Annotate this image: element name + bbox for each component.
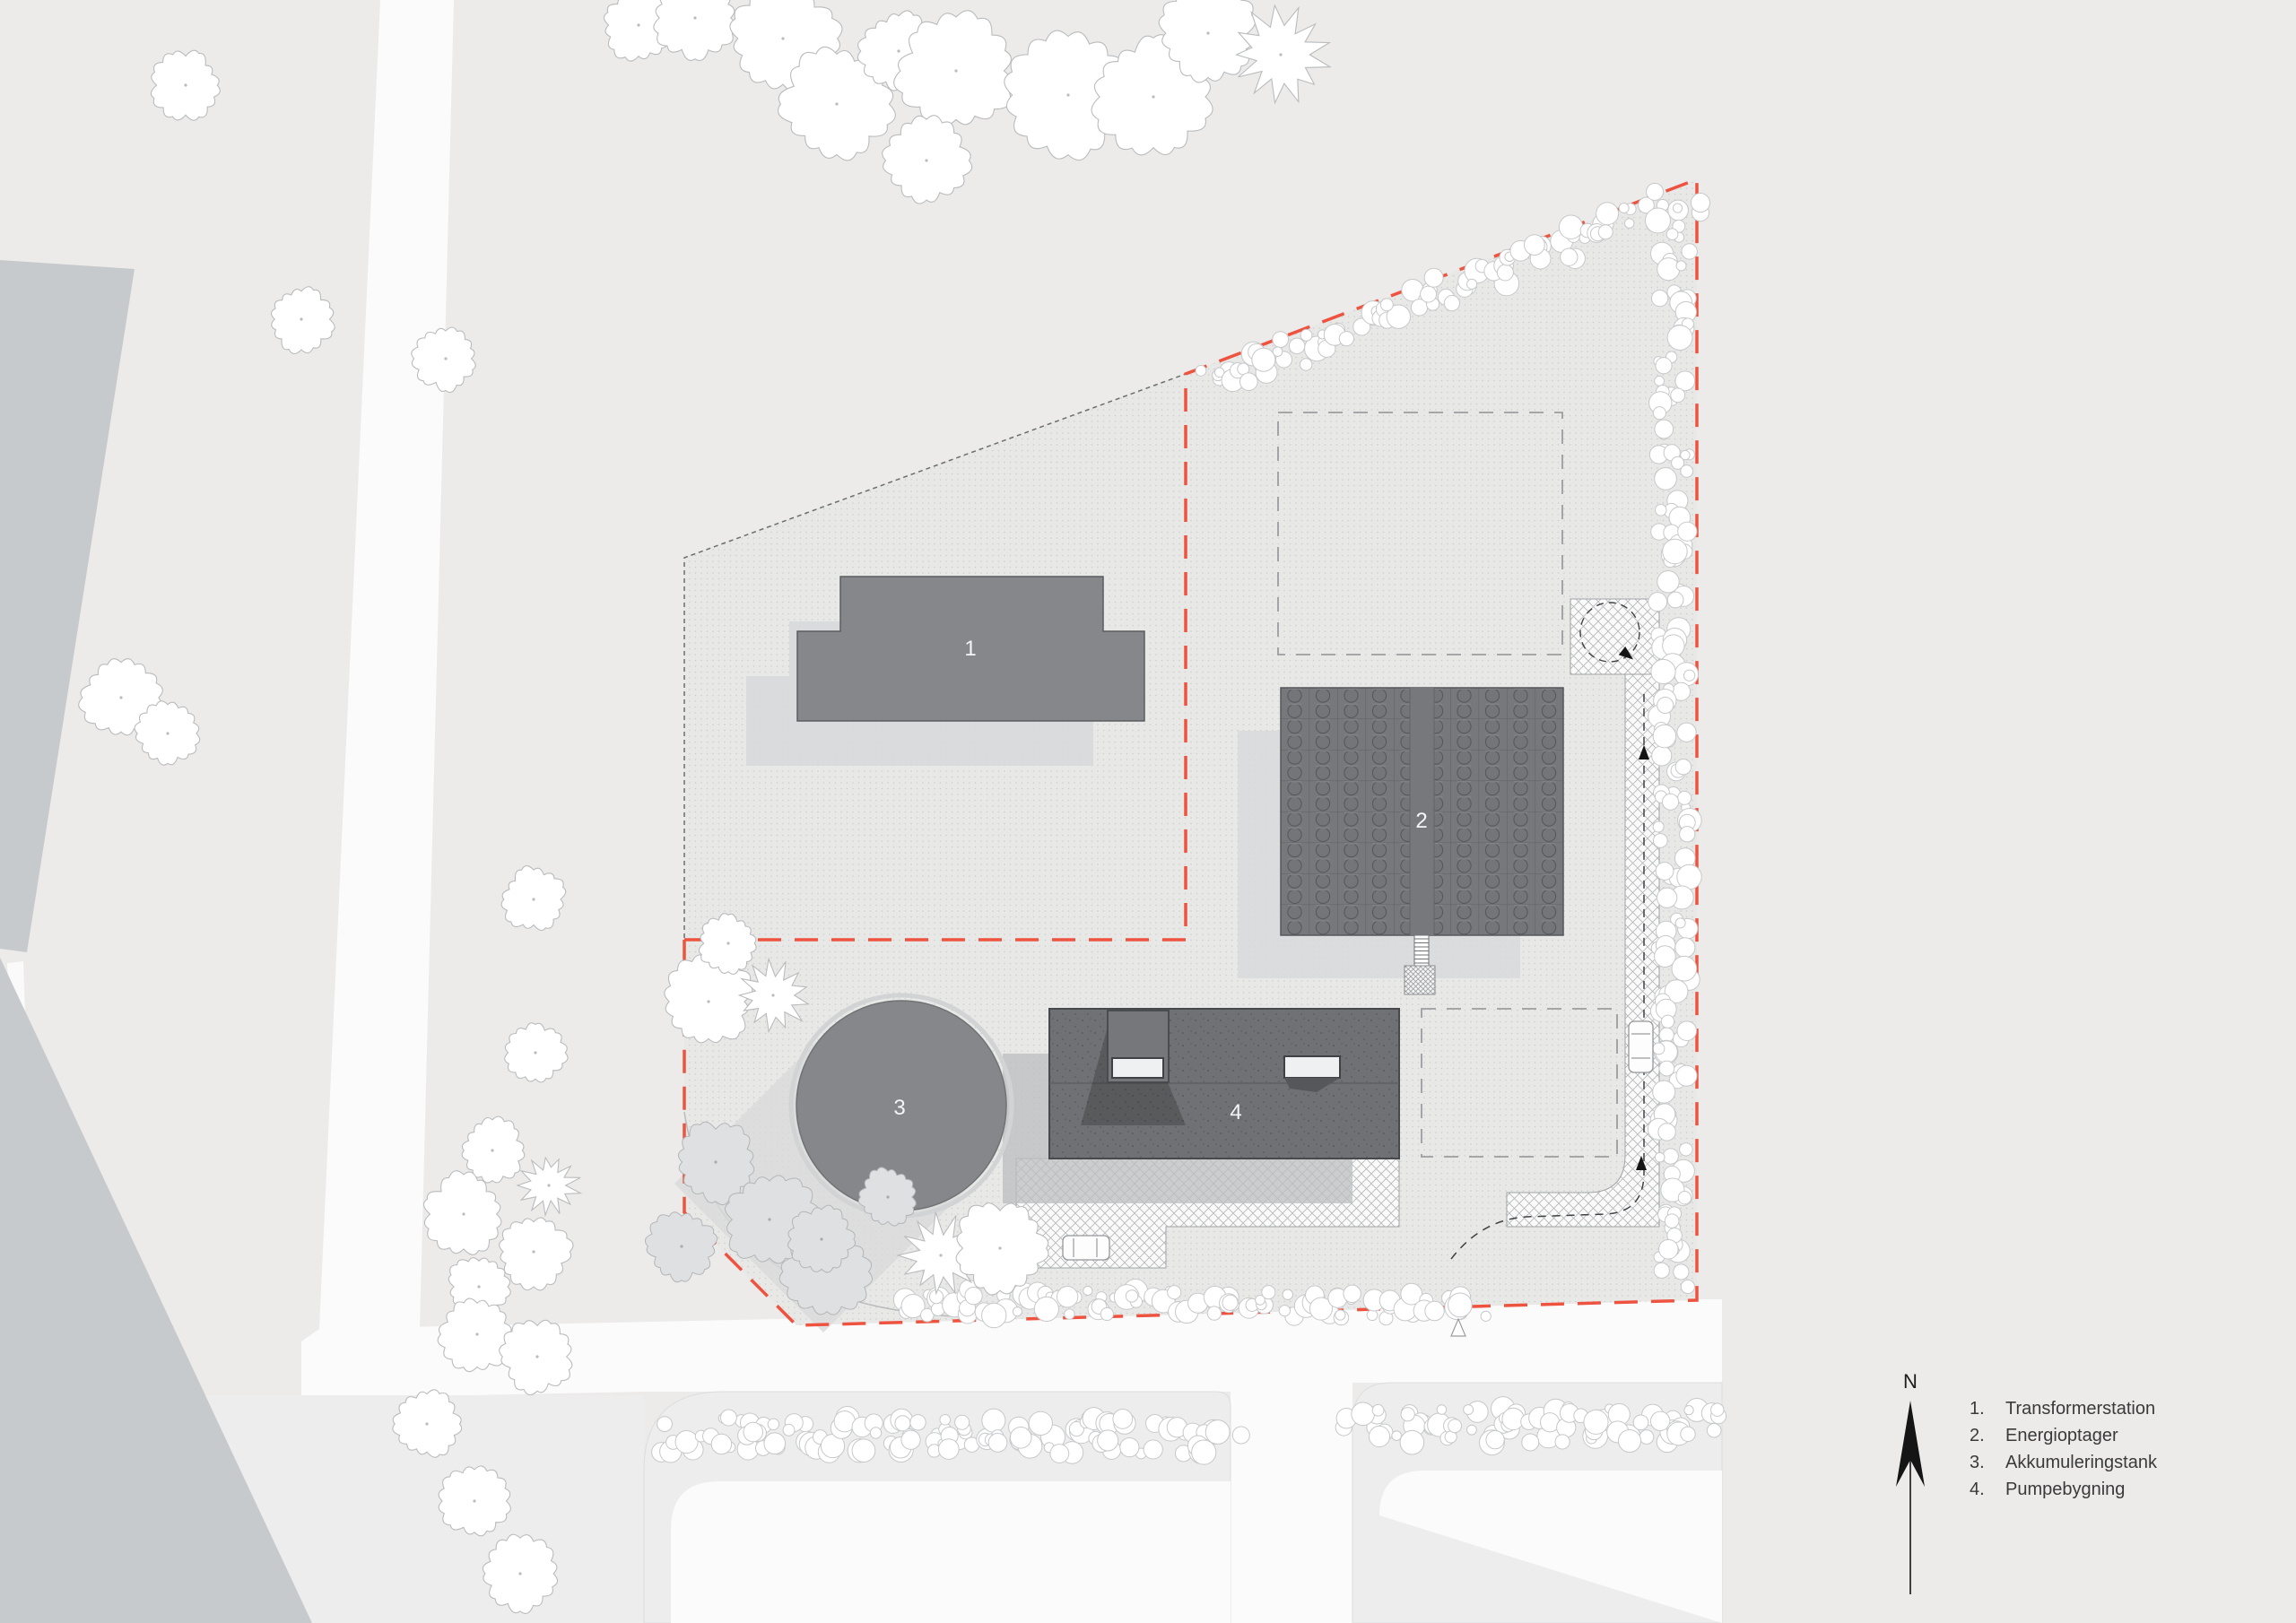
- hedge-shrub: [1652, 746, 1672, 766]
- hedge-shrub: [1467, 1425, 1477, 1435]
- tree-center-dot: [535, 1355, 538, 1358]
- building-4-label: 4: [1230, 1100, 1241, 1124]
- hedge-shrub: [1525, 235, 1545, 256]
- hedge-shrub: [1192, 1440, 1216, 1464]
- hedge-shrub: [1651, 290, 1667, 306]
- tree-center-dot: [680, 1245, 683, 1247]
- hedge-shrub: [1633, 1415, 1648, 1430]
- hedge-shrub: [910, 1415, 926, 1430]
- tree-center-dot: [771, 994, 774, 996]
- legend-label: Pumpebygning: [2005, 1476, 2125, 1503]
- access-ladder-rungs: [1414, 939, 1429, 963]
- hedge-shrub: [1559, 215, 1582, 239]
- hedge-shrub: [1207, 1306, 1221, 1320]
- hedge-shrub: [982, 1303, 1006, 1327]
- hedge-shrub: [1655, 376, 1665, 386]
- hedge-shrub: [1678, 1192, 1691, 1204]
- hedge-shrub: [1645, 208, 1670, 233]
- hedge-shrub: [1656, 358, 1672, 374]
- tree-center-dot: [707, 1000, 709, 1002]
- hedge-shrub: [1372, 1404, 1384, 1416]
- hedge-shrub: [1467, 279, 1477, 289]
- legend-item-pumpebygning: 4. Pumpebygning: [1970, 1476, 2157, 1503]
- hedge-shrub: [988, 1433, 1007, 1452]
- hedge-shrub: [1065, 1309, 1074, 1319]
- hedge-shrub: [1057, 1287, 1077, 1307]
- hedge-shrub: [1497, 265, 1513, 281]
- site-plan-canvas: 1234: [0, 0, 2296, 1623]
- hedge-shrub: [1289, 338, 1304, 353]
- hedge-shrub: [1598, 225, 1613, 239]
- legend-number: 1.: [1970, 1395, 1993, 1422]
- hedge-shrub: [1653, 725, 1676, 748]
- hedge-shrub: [1421, 286, 1437, 302]
- hedge-shrub: [1283, 1289, 1292, 1299]
- hedge-shrub: [1240, 373, 1258, 391]
- hedge-shrub: [1711, 1403, 1724, 1416]
- hedge-shrub: [1098, 1430, 1118, 1451]
- hedge-shrub: [1561, 248, 1578, 265]
- legend-number: 4.: [1970, 1476, 1993, 1503]
- north-arrow-icon: [1882, 1393, 1939, 1600]
- hedge-shrub: [1400, 1430, 1424, 1454]
- hedge-shrub: [1205, 1420, 1230, 1445]
- hedge-shrub: [1653, 821, 1664, 832]
- hedge-shrub: [1667, 592, 1683, 608]
- hedge-shrub: [1273, 347, 1283, 357]
- hedge-shrub: [1481, 1311, 1491, 1321]
- skylight: [1112, 1058, 1163, 1078]
- hedge-shrub: [1100, 1307, 1113, 1320]
- hedge-shrub: [1196, 365, 1206, 376]
- tree-center-dot: [518, 1572, 521, 1575]
- legend-label: Akkumuleringstank: [2005, 1449, 2157, 1476]
- hedge-shrub: [1658, 1124, 1675, 1141]
- hedge-shrub: [1448, 1419, 1462, 1433]
- hedge-shrub: [1126, 1290, 1137, 1302]
- hedge-shrub: [1425, 1301, 1444, 1320]
- tree-center-dot: [693, 16, 696, 19]
- hedge-shrub: [1083, 1286, 1092, 1295]
- hedge-shrub: [1653, 407, 1665, 420]
- hedge-shrub: [1279, 1306, 1290, 1316]
- legend-number: 3.: [1970, 1449, 1993, 1476]
- hedge-shrub: [1010, 1427, 1031, 1448]
- hedge-shrub: [1300, 359, 1311, 370]
- hedge-shrub: [1050, 1445, 1069, 1463]
- north-label: N: [1882, 1370, 1939, 1393]
- hedge-shrub: [1624, 219, 1633, 228]
- hedge-shrub: [1113, 1409, 1133, 1428]
- hedge-shrub: [1675, 918, 1685, 928]
- tree-center-dot: [166, 732, 169, 734]
- hedge-shrub: [1666, 229, 1678, 240]
- hedge-shrub: [1661, 1015, 1674, 1028]
- north-indicator: N: [1882, 1370, 1939, 1604]
- hedge-shrub: [1678, 791, 1692, 804]
- tree-center-dot: [835, 102, 838, 105]
- building-1-label: 1: [964, 637, 976, 661]
- tree-center-dot: [939, 1254, 942, 1256]
- tree-center-dot: [637, 23, 639, 26]
- hedge-shrub: [1655, 1152, 1665, 1162]
- hedge-shrub: [1657, 258, 1680, 281]
- hedge-shrub: [1034, 1297, 1058, 1321]
- tree-center-dot: [184, 83, 187, 86]
- hedge-shrub: [965, 1287, 982, 1304]
- hedge-shrub: [1464, 1405, 1474, 1415]
- car: [1629, 1021, 1653, 1072]
- hedge-shrub: [1486, 1430, 1504, 1448]
- hedge-shrub: [1444, 296, 1459, 311]
- tree-center-dot: [532, 898, 535, 900]
- hedge-shrub: [1677, 1021, 1697, 1041]
- tree-center-dot: [462, 1212, 465, 1215]
- hedge-shrub: [1653, 1043, 1665, 1055]
- hedge-shrub: [1013, 1307, 1022, 1316]
- tree-center-dot: [547, 1184, 550, 1186]
- hedge-shrub: [657, 1417, 673, 1432]
- tree-center-dot: [477, 1285, 480, 1288]
- hedge-shrub: [1691, 193, 1709, 212]
- hedge-shrub: [675, 1430, 698, 1453]
- hedge-shrub: [1401, 1408, 1414, 1421]
- hedge-shrub: [1672, 956, 1697, 981]
- tree-center-dot: [444, 357, 447, 360]
- hedge-shrub: [1584, 1410, 1608, 1434]
- hedge-shrub: [1667, 325, 1692, 351]
- hedge-shrub: [1029, 1411, 1052, 1435]
- hedge-shrub: [1168, 1286, 1181, 1299]
- tree-center-dot: [300, 317, 302, 320]
- hedge-shrub: [1653, 1081, 1675, 1103]
- hedge-shrub: [1663, 794, 1679, 810]
- hedge-shrub: [1437, 1405, 1447, 1415]
- driveway-paving: [1570, 599, 1659, 674]
- hedge-shrub: [1339, 332, 1353, 346]
- hedge-shrub: [1653, 834, 1667, 848]
- hedge-shrub: [1671, 388, 1685, 403]
- tree-center-dot: [726, 942, 729, 944]
- hedge-shrub: [720, 1410, 736, 1426]
- hedge-shrub: [1681, 1280, 1694, 1293]
- hedge-shrub: [1657, 697, 1674, 713]
- hedge-shrub: [1256, 1295, 1265, 1305]
- hedge-shrub: [1596, 203, 1619, 225]
- tree-center-dot: [781, 37, 784, 39]
- site-plan-page: 1234 N 1. Transformerstation 2. Energiop…: [0, 0, 2296, 1623]
- hedge-shrub: [1678, 522, 1697, 541]
- tree-center-dot: [532, 1250, 535, 1253]
- car: [1063, 1236, 1109, 1260]
- tree-center-dot: [925, 159, 927, 161]
- legend-number: 2.: [1970, 1422, 1993, 1449]
- tree-center-dot: [1152, 95, 1154, 98]
- tree-center-dot: [534, 1051, 536, 1054]
- hedge-shrub: [1682, 244, 1697, 259]
- hedge-shrub: [768, 1419, 778, 1429]
- hedge-shrub: [1680, 1143, 1692, 1156]
- hedge-shrub: [870, 1428, 881, 1438]
- tree-center-dot: [425, 1422, 428, 1425]
- hedge-shrub: [1120, 1437, 1139, 1456]
- hedge-shrub: [1273, 332, 1289, 348]
- neighbor-lot: [671, 1481, 1231, 1623]
- hedge-shrub: [982, 1409, 1005, 1432]
- hedge-shrub: [955, 1415, 970, 1429]
- access-pad: [1405, 966, 1435, 994]
- hedge-shrub: [1352, 1402, 1375, 1426]
- hedge-shrub: [1655, 420, 1674, 438]
- tree-center-dot: [1206, 31, 1209, 34]
- hedge-shrub: [1659, 1239, 1679, 1259]
- hedge-shrub: [1684, 1405, 1693, 1414]
- hedge-shrub: [938, 1439, 959, 1460]
- legend-item-akkumuleringstank: 3. Akkumuleringstank: [1970, 1449, 2157, 1476]
- tree-center-dot: [954, 69, 957, 72]
- hedge-shrub: [1651, 659, 1675, 683]
- hedge-shrub: [1232, 1427, 1249, 1444]
- hedge-shrub: [1675, 938, 1695, 958]
- hedge-shrub: [1673, 204, 1682, 213]
- hedge-shrub: [1707, 1423, 1721, 1437]
- hedge-shrub: [1676, 1065, 1697, 1086]
- hedge-shrub: [1681, 1427, 1695, 1441]
- hedge-shrub: [895, 1416, 910, 1431]
- hedge-shrub: [940, 1415, 951, 1426]
- hedge-shrub: [1654, 1263, 1669, 1278]
- tree-center-dot: [473, 1499, 475, 1502]
- hedge-shrub: [1675, 759, 1691, 774]
- hedge-shrub: [744, 1422, 763, 1442]
- hedge-shrub: [1676, 261, 1686, 271]
- tree-center-dot: [475, 1332, 478, 1335]
- hedge-shrub: [1367, 1310, 1378, 1321]
- hedge-shrub: [1335, 1310, 1345, 1320]
- tree-center-dot: [897, 49, 900, 52]
- tree-center-dot: [1279, 53, 1282, 56]
- hedge-shrub: [1647, 183, 1664, 200]
- hedge-shrub: [901, 1430, 920, 1449]
- building-3-label: 3: [893, 1096, 905, 1120]
- legend-label: Transformerstation: [2005, 1395, 2155, 1422]
- hedge-shrub: [1252, 348, 1275, 371]
- hedge-shrub: [1619, 1429, 1641, 1452]
- legend: 1. Transformerstation 2. Energioptager 3…: [1970, 1395, 2157, 1503]
- hedge-shrub: [1655, 468, 1677, 490]
- hedge-shrub: [783, 1424, 795, 1436]
- tree-center-dot: [820, 1237, 822, 1240]
- hedge-shrub: [1656, 505, 1666, 516]
- hedge-shrub: [1369, 1426, 1389, 1446]
- hedge-shrub: [711, 1434, 731, 1454]
- building-2-label: 2: [1415, 809, 1427, 833]
- hedge-shrub: [1555, 1435, 1570, 1449]
- hedge-shrub: [1448, 1293, 1472, 1317]
- hedge-shrub: [1665, 1214, 1679, 1228]
- hedge-shrub: [1300, 329, 1312, 341]
- hedge-shrub: [1144, 1440, 1162, 1459]
- legend-label: Energioptager: [2005, 1422, 2118, 1449]
- hedge-shrub: [764, 1433, 786, 1454]
- hedge-shrub: [1648, 593, 1667, 612]
- hedge-shrub: [1344, 1285, 1361, 1302]
- tree-center-dot: [714, 1160, 717, 1163]
- tree-center-dot: [768, 1218, 770, 1220]
- hedge-shrub: [852, 1439, 875, 1462]
- hedge-shrub: [1424, 268, 1443, 287]
- hedge-shrub: [1681, 465, 1693, 478]
- tree-center-dot: [119, 696, 122, 699]
- tree-center-dot: [491, 1149, 493, 1151]
- hedge-shrub: [1222, 1295, 1238, 1310]
- legend-item-energioptager: 2. Energioptager: [1970, 1422, 2157, 1449]
- hedge-shrub: [1639, 1430, 1654, 1445]
- skylight: [1284, 1056, 1340, 1078]
- hedge-shrub: [1680, 827, 1695, 842]
- hedge-shrub: [1657, 888, 1677, 907]
- hedge-shrub: [1656, 863, 1674, 881]
- hedge-shrub: [1502, 1408, 1524, 1429]
- hedge-shrub: [1522, 1434, 1539, 1451]
- hedge-shrub: [1659, 1061, 1674, 1076]
- hedge-shrub: [1674, 1264, 1689, 1280]
- tree-center-dot: [998, 1246, 1001, 1249]
- tree-center-dot: [886, 1195, 889, 1198]
- legend-item-transformerstation: 1. Transformerstation: [1970, 1395, 2157, 1422]
- hedge-shrub: [1677, 723, 1696, 742]
- hedge-shrub: [1683, 670, 1694, 681]
- hedge-shrub: [1380, 299, 1393, 311]
- hedge-shrub: [1619, 203, 1629, 213]
- hedge-shrub: [1392, 1431, 1402, 1441]
- tree-center-dot: [1066, 93, 1069, 96]
- hedge-shrub: [1663, 539, 1688, 564]
